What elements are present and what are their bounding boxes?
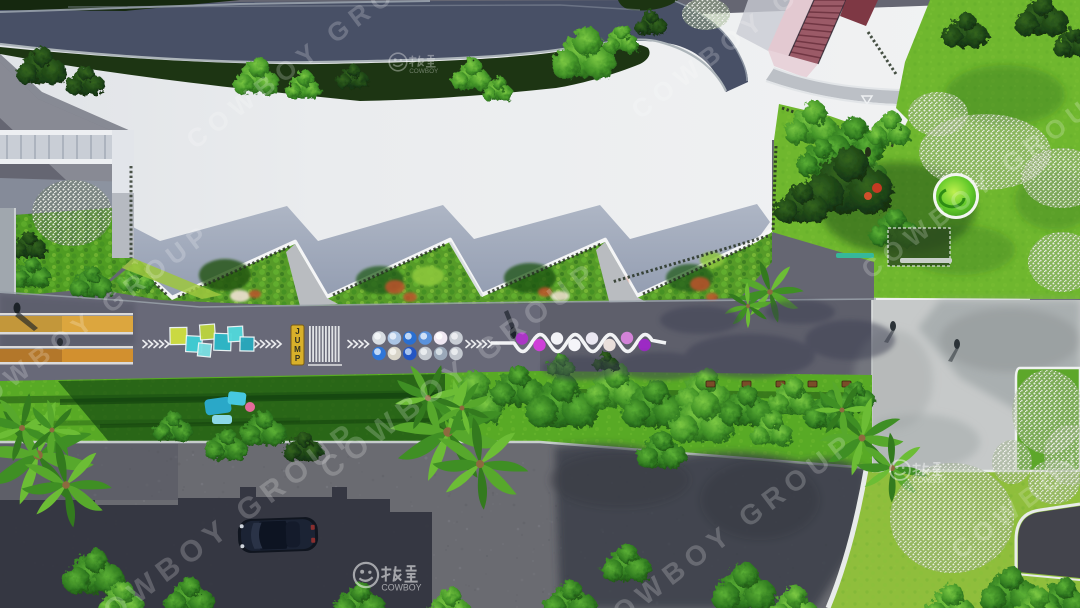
- svg-text:J: J: [295, 327, 299, 336]
- svg-text:COWBOY: COWBOY: [409, 68, 439, 75]
- svg-text:COWBOY: COWBOY: [381, 582, 421, 592]
- svg-text:U: U: [295, 336, 301, 345]
- svg-text:P: P: [295, 354, 301, 363]
- svg-text:M: M: [294, 345, 301, 354]
- svg-text:COWBOY: COWBOY: [913, 476, 946, 485]
